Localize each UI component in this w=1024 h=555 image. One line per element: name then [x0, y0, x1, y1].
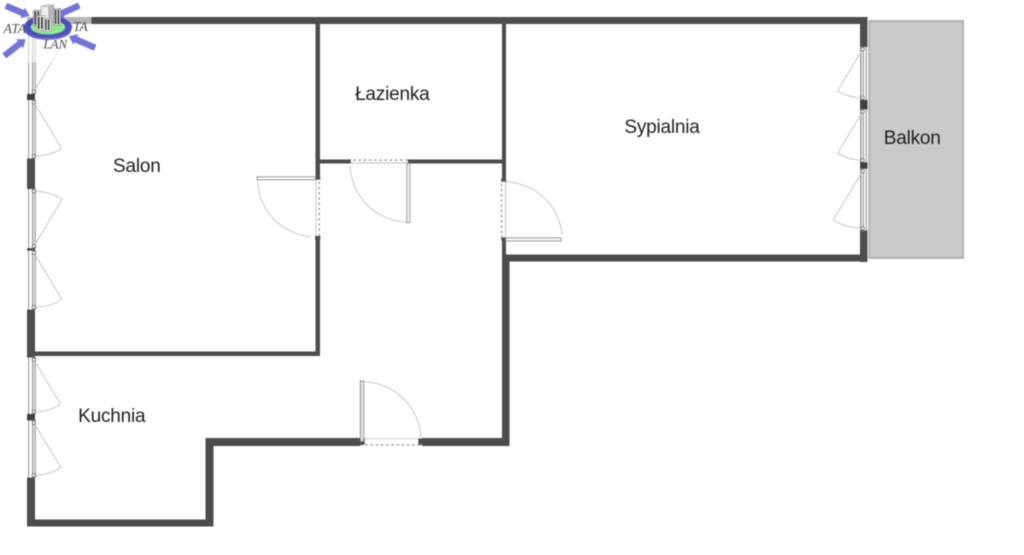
svg-text:Kuchnia: Kuchnia	[78, 406, 146, 427]
svg-text:Salon: Salon	[113, 156, 161, 177]
svg-text:Sypialnia: Sypialnia	[624, 117, 700, 138]
svg-text:LAN: LAN	[42, 37, 68, 52]
svg-text:ATA: ATA	[3, 21, 27, 36]
svg-text:Balkon: Balkon	[884, 128, 941, 149]
svg-text:TA: TA	[73, 19, 89, 34]
svg-text:Łazienka: Łazienka	[355, 84, 430, 105]
